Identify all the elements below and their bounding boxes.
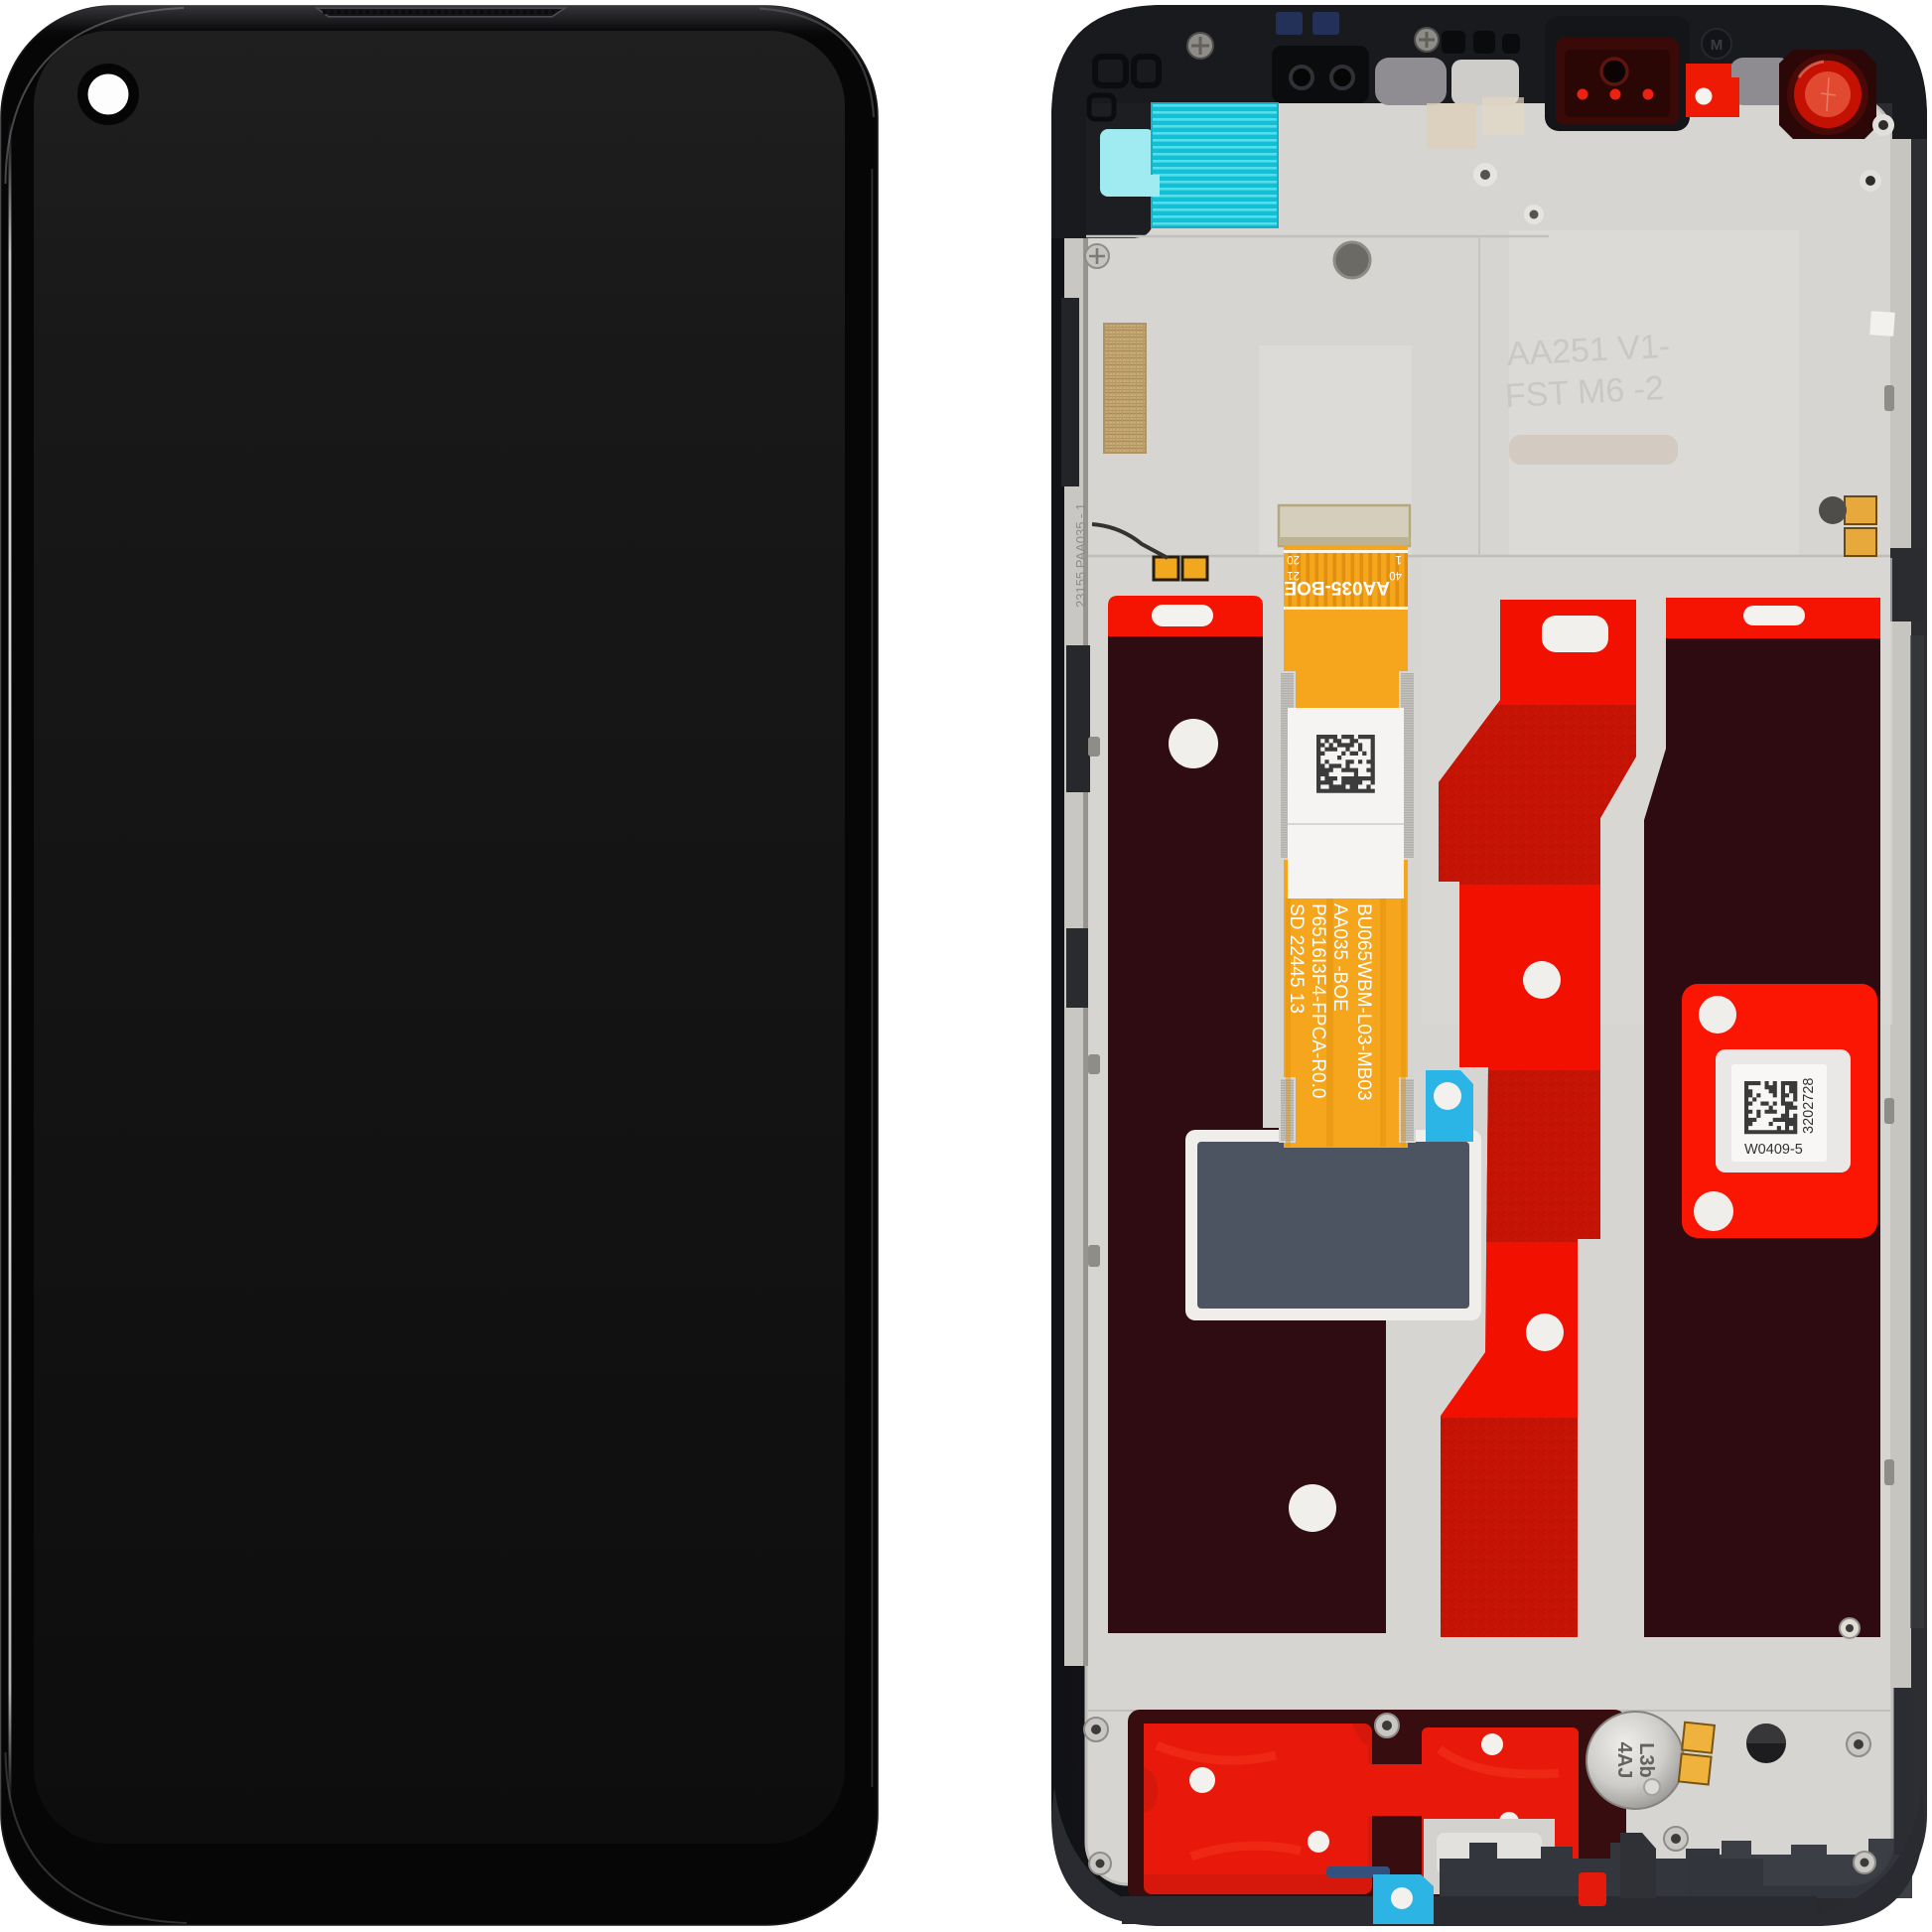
svg-text:SD 22445 13: SD 22445 13 [1286,903,1307,1014]
svg-text:P6516I3F4-FPCA-R0.0: P6516I3F4-FPCA-R0.0 [1308,903,1328,1098]
svg-text:23155 PAA035 - 1: 23155 PAA035 - 1 [1073,503,1088,608]
svg-text:4AJ: 4AJ [1613,1742,1635,1779]
svg-text:BU065WBM-L03-MB03: BU065WBM-L03-MB03 [1353,903,1374,1101]
svg-text:M: M [1711,37,1724,54]
svg-text:1: 1 [1396,553,1402,565]
svg-text:3202728: 3202728 [1801,1078,1817,1134]
svg-text:W0409-5: W0409-5 [1744,1142,1803,1158]
svg-text:21: 21 [1287,569,1300,581]
svg-text:40: 40 [1389,569,1402,581]
svg-text:AA035 -BOE: AA035 -BOE [1329,903,1350,1012]
svg-text:L3b: L3b [1635,1742,1657,1778]
svg-text:20: 20 [1287,553,1300,565]
